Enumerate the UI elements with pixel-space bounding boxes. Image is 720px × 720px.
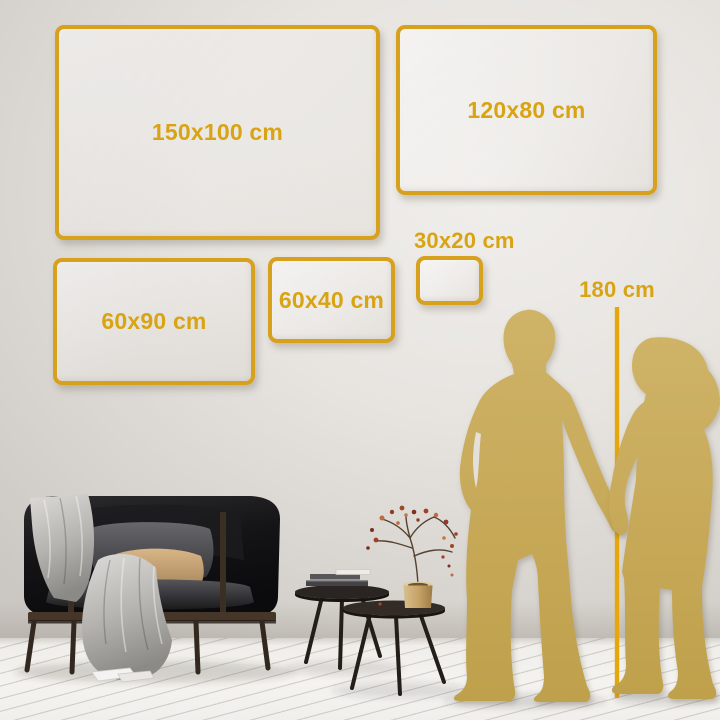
frame-30x20 (416, 256, 483, 305)
size-label-150x100: 150x100 cm (152, 119, 283, 146)
frame-60x90: 60x90 cm (53, 258, 255, 385)
frame-120x80: 120x80 cm (396, 25, 657, 195)
size-guide-scene: 150x100 cm 120x80 cm 60x90 cm 60x40 cm 3… (0, 0, 720, 720)
size-label-30x20: 30x20 cm (414, 228, 515, 254)
wood-plank-floor (0, 638, 720, 720)
size-label-60x90: 60x90 cm (101, 308, 206, 335)
frame-150x100: 150x100 cm (55, 25, 380, 240)
size-label-60x40: 60x40 cm (279, 287, 384, 314)
frame-60x40: 60x40 cm (268, 257, 395, 343)
height-ruler-label: 180 cm (556, 277, 678, 303)
size-label-120x80: 120x80 cm (467, 97, 585, 124)
